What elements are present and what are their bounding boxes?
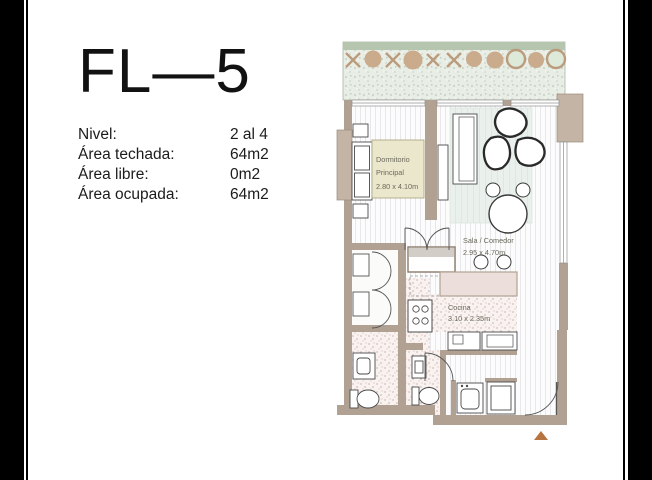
wall: [344, 100, 352, 108]
right-black-bar: [628, 0, 652, 480]
refrigerator-inner: [491, 386, 511, 410]
plant-bush-icon: [528, 52, 544, 68]
armchair: [495, 108, 527, 136]
detail-row: Nivel: 2 al 4: [78, 126, 358, 146]
plant-ring-icon: [547, 50, 565, 68]
closet-shelf: [353, 292, 369, 316]
washing-machine-drum: [461, 389, 479, 409]
plant-bush-icon: [487, 52, 504, 69]
kitchen-floor: [430, 294, 517, 332]
detail-row: Área techada: 64m2: [78, 146, 358, 166]
pillow: [355, 146, 370, 170]
toilet-tank: [412, 387, 419, 405]
wall: [503, 100, 511, 106]
burner: [422, 318, 428, 324]
knob-icon: [466, 385, 468, 387]
tv-console: [438, 145, 448, 200]
bedroom-name-line1: Dormitorio: [376, 155, 410, 164]
floor-plan-sheet: FL—5 Nivel: 2 al 4 Área techada: 64m2 Ár…: [0, 0, 652, 480]
closet-shelf: [353, 254, 369, 276]
wall: [433, 415, 567, 425]
detail-label: Área ocupada:: [78, 186, 230, 206]
plant-ring-icon: [507, 50, 525, 68]
plant-bush-icon: [404, 51, 423, 70]
burner: [422, 306, 428, 312]
column-block: [557, 94, 583, 142]
knob-icon: [461, 385, 463, 387]
wall: [485, 378, 517, 382]
plant-bush-icon: [365, 51, 382, 68]
detail-label: Nivel:: [78, 126, 230, 146]
pillow: [355, 173, 370, 197]
wall: [344, 325, 398, 332]
wall: [446, 350, 517, 355]
bar-stool: [497, 255, 511, 269]
wall: [398, 250, 406, 415]
dining-table: [489, 195, 527, 233]
detail-label: Área libre:: [78, 166, 230, 186]
toilet-bowl: [419, 388, 439, 405]
sofa-seat: [459, 117, 474, 181]
unit-details: Nivel: 2 al 4 Área techada: 64m2 Área li…: [78, 126, 358, 206]
dining-chair: [516, 183, 530, 197]
detail-label: Área techada:: [78, 146, 230, 166]
hedge: [343, 42, 565, 50]
sink-basin: [415, 361, 423, 373]
kitchen-sink: [453, 335, 463, 344]
bar-stool: [474, 255, 488, 269]
wall: [559, 263, 568, 330]
bedroom-name-line2: Principal: [376, 168, 404, 177]
nightstand: [353, 204, 368, 218]
detail-row: Área ocupada: 64m2: [78, 186, 358, 206]
left-border-line: [26, 0, 28, 480]
burner: [413, 318, 419, 324]
kitchen-name: Cocina: [448, 303, 472, 312]
pilaster: [337, 130, 352, 200]
armchair: [515, 138, 544, 166]
stove: [408, 300, 432, 332]
wall: [406, 343, 423, 350]
wall: [557, 330, 567, 420]
dining-chair: [486, 183, 500, 197]
kitchen-dimensions: 3.10 x 2.35m: [448, 314, 490, 323]
plant-bush-icon: [466, 51, 482, 67]
left-black-bar: [0, 0, 24, 480]
unit-title: FL—5: [78, 36, 251, 107]
kitchen-cabinet-top: [409, 248, 454, 257]
armchair: [484, 137, 510, 170]
floor-plan-drawing: Dormitorio Principal 2.80 x 4.10m Sala /…: [335, 38, 590, 450]
living-dimensions: 2.95 x 4.70m: [463, 248, 505, 257]
burner: [413, 306, 419, 312]
terrace: [343, 42, 565, 100]
sink-basin: [357, 358, 370, 374]
living-name: Sala / Comedor: [463, 236, 514, 245]
wall-divider: [425, 100, 437, 220]
wall: [344, 243, 398, 250]
entrance-marker-icon: [534, 431, 548, 440]
nightstand: [353, 124, 368, 137]
bedroom-dimensions: 2.80 x 4.10m: [376, 182, 418, 191]
kitchen-island: [440, 272, 517, 296]
wall: [451, 380, 456, 415]
right-border-line: [623, 0, 625, 480]
detail-row: Área libre: 0m2: [78, 166, 358, 186]
counter-detail: [487, 335, 513, 347]
toilet-bowl: [357, 390, 379, 408]
